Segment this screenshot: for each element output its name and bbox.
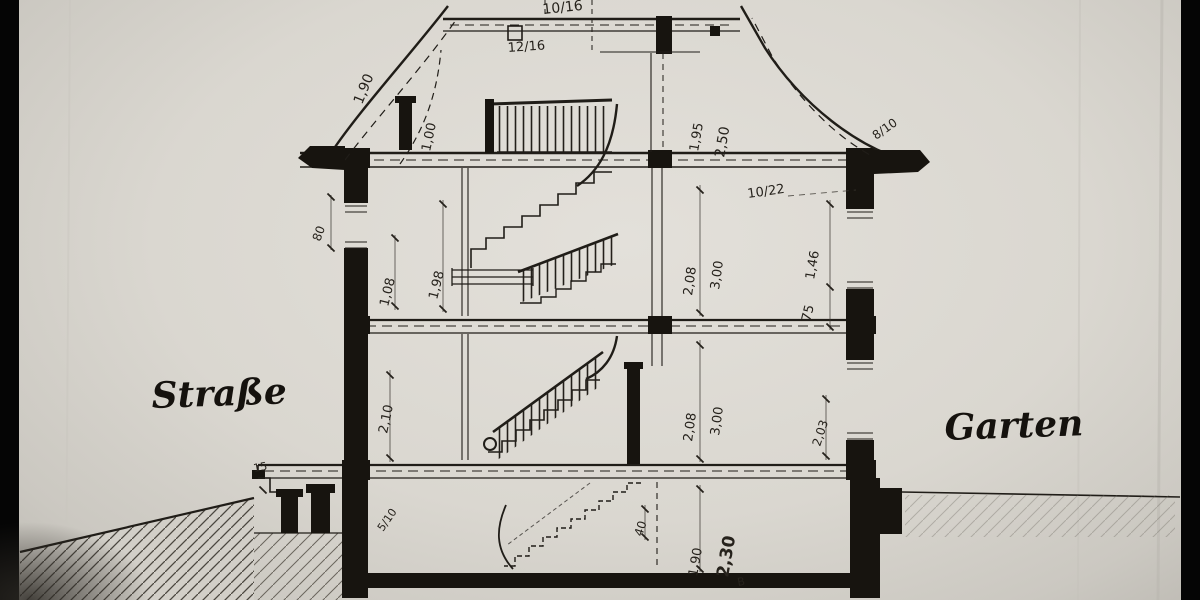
dim-label: 40 [632, 519, 650, 538]
left-window [345, 206, 367, 248]
dim-label: 1,00 [419, 121, 440, 152]
dim-label: 2,08 [681, 266, 700, 297]
roof-right-slope [741, 6, 930, 174]
dim-label: 1,90 [351, 72, 378, 107]
dim-label: 2,03 [810, 418, 832, 448]
dim-label: 1,08 [377, 276, 399, 308]
garden-label: Garten [944, 402, 1084, 449]
upper-flight [452, 172, 618, 303]
staircase [452, 99, 643, 569]
section-drawing: 10/16 12/16 1,90 1,00 1,95 2,50 8/10 10/… [0, 0, 1200, 600]
dim-label: 1,46 [803, 250, 823, 281]
exterior-walls [344, 168, 874, 462]
dim-label: 3,00 [708, 260, 727, 291]
dim-label: 2,30 [713, 534, 740, 579]
dim-label: 12/16 [507, 38, 545, 56]
lower-flight [484, 336, 643, 464]
dim-label: 5/10 [375, 506, 400, 534]
dim-label: 1,95 [687, 122, 707, 153]
middle-floor-slab [344, 316, 876, 334]
dim-label: 10/16 [542, 0, 584, 18]
dim-label: 10/22 [746, 182, 785, 202]
street-label: Straße [151, 370, 288, 417]
dim-label: 8/10 [870, 116, 900, 143]
basement-flight [499, 483, 641, 569]
scanned-drawing-page: 10/16 12/16 1,90 1,00 1,95 2,50 8/10 10/… [0, 0, 1200, 600]
left-wall [344, 168, 368, 462]
dim-label: 80 [310, 224, 328, 243]
right-wall [846, 168, 874, 462]
street-entry-stoop [252, 465, 335, 533]
dim-label: 2,10 [376, 403, 397, 434]
dim-label: 1,98 [426, 269, 448, 301]
attic-balustrade [485, 99, 617, 186]
dim-label: 3,00 [708, 406, 727, 437]
dim-label: 2,08 [681, 412, 700, 443]
ground-floor-slab [258, 460, 876, 480]
dim-label: 15 [252, 460, 268, 475]
collar-beam [443, 0, 740, 54]
garden-ground [902, 492, 1180, 537]
foundation-walls [342, 478, 902, 598]
newel-post [627, 367, 640, 464]
volute [484, 438, 496, 450]
right-cornice [874, 150, 930, 174]
